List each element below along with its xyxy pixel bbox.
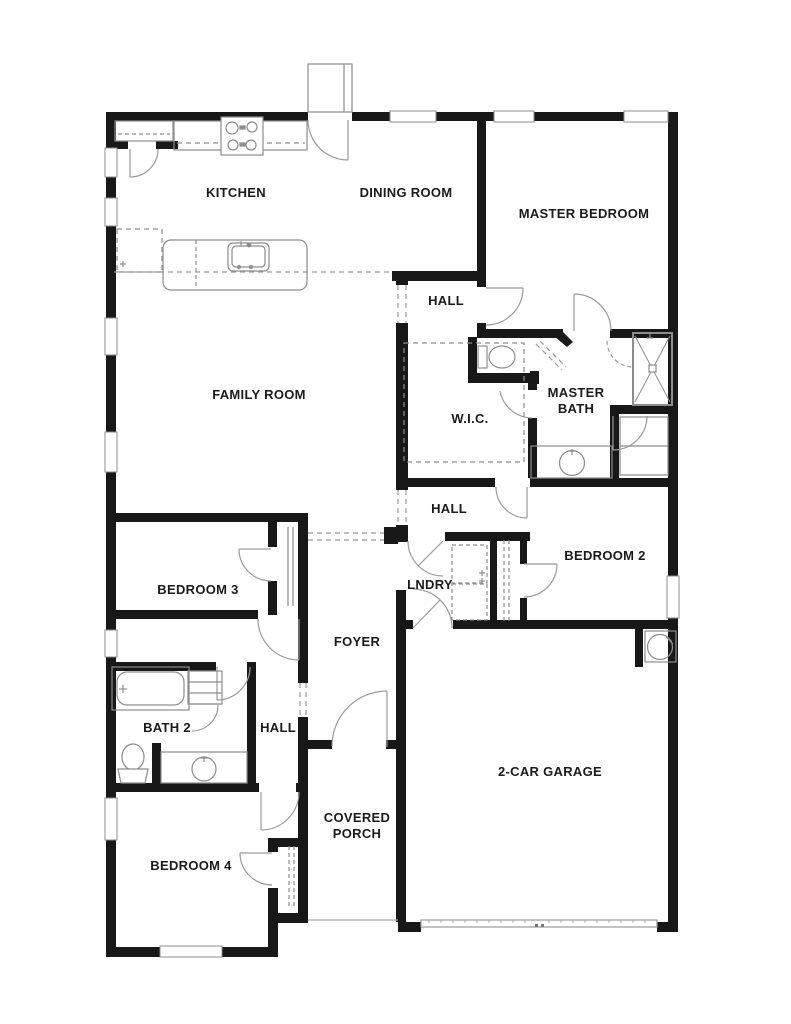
master-toilet [478,346,515,368]
pantry-shelf [115,121,173,141]
room-label-family-room: FAMILY ROOM [212,387,306,403]
kitchen-island-sink [228,241,269,271]
room-label-bedroom-2: BEDROOM 2 [564,548,645,564]
room-label-wic: W.I.C. [451,411,488,427]
room-label-covered-porch: COVERED PORCH [312,810,402,843]
front-stoop [308,64,352,112]
stove [221,117,263,155]
floorplan-page: KITCHEN DINING ROOM MASTER BEDROOM HALL … [0,0,791,1024]
room-label-bedroom-3: BEDROOM 3 [157,582,238,598]
floorplan-drawing [0,0,791,1024]
garage-door [421,920,657,927]
cased-openings [114,272,566,717]
refrigerator [117,229,162,272]
room-label-hall-lower: HALL [260,720,296,736]
room-label-dining-room: DINING ROOM [360,185,453,201]
room-label-laundry: LNDRY [407,577,453,593]
room-label-master-bath: MASTER BATH [542,385,610,418]
bath2-vanity-sink [161,752,247,783]
bathtub [112,667,189,710]
room-label-foyer: FOYER [334,634,380,650]
room-label-garage: 2-CAR GARAGE [498,764,602,780]
room-label-bath-2: BATH 2 [143,720,191,736]
room-label-kitchen: KITCHEN [206,185,266,201]
bath2-toilet [118,744,148,783]
room-label-hall-upper: HALL [428,293,464,309]
shower [633,333,672,405]
washer-dryer [452,545,487,620]
room-label-bedroom-4: BEDROOM 4 [150,858,231,874]
room-label-hall-mid: HALL [431,501,467,517]
linen-shelves [620,417,668,475]
room-label-master-bedroom: MASTER BEDROOM [519,206,650,222]
master-vanity-sink [531,446,612,478]
